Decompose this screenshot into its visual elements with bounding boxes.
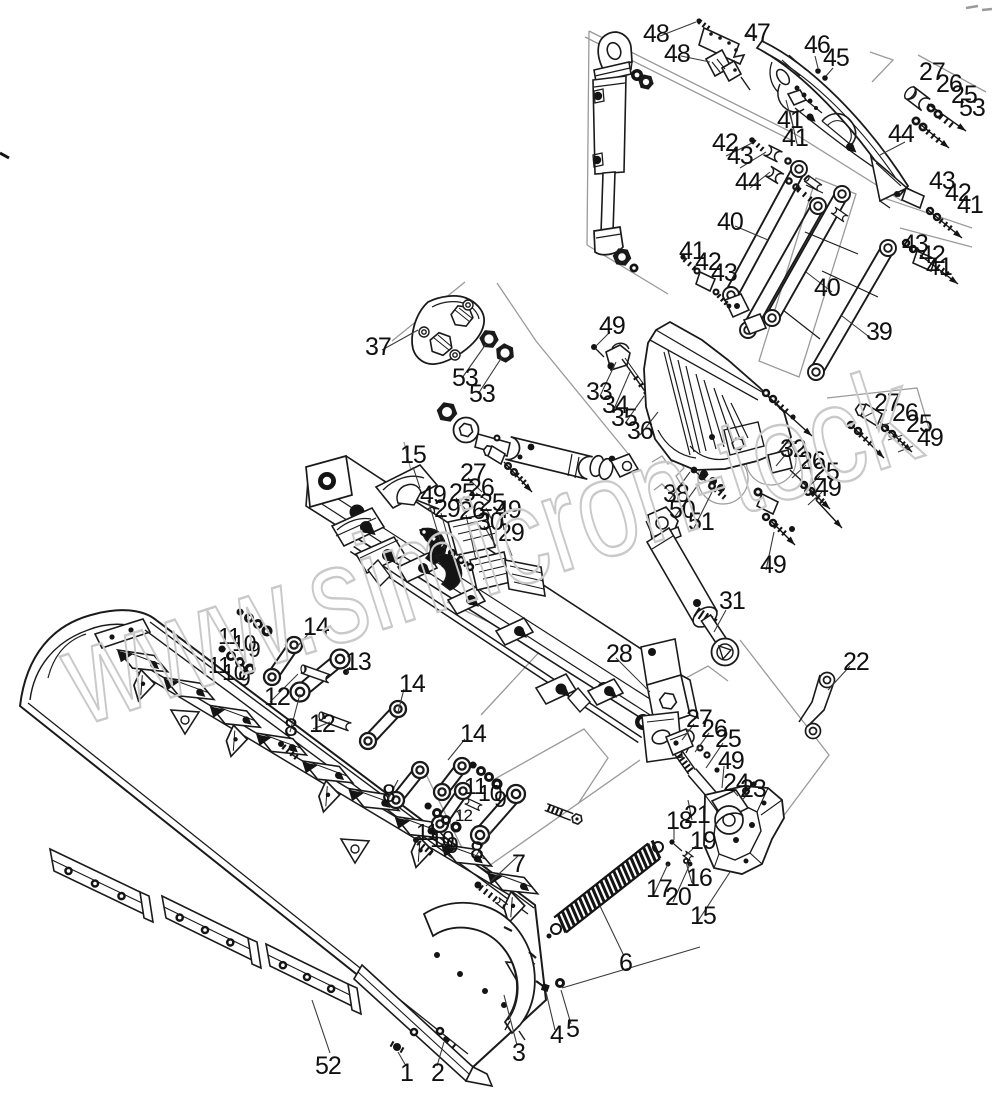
- svg-text:9: 9: [446, 832, 458, 858]
- svg-text:20: 20: [665, 883, 691, 911]
- svg-text:43: 43: [711, 259, 737, 287]
- svg-text:8: 8: [470, 837, 483, 865]
- svg-text:5: 5: [566, 1015, 579, 1043]
- svg-text:49: 49: [599, 312, 625, 340]
- svg-text:12: 12: [309, 710, 335, 738]
- svg-text:47: 47: [744, 19, 770, 47]
- svg-text:37: 37: [365, 333, 391, 361]
- svg-text:4: 4: [550, 1021, 564, 1049]
- svg-text:41: 41: [782, 124, 808, 152]
- svg-text:22: 22: [843, 648, 869, 676]
- svg-text:41: 41: [957, 191, 983, 219]
- svg-text:14: 14: [399, 670, 426, 698]
- svg-text:3: 3: [512, 1039, 525, 1067]
- svg-text:41: 41: [926, 253, 952, 281]
- svg-text:52: 52: [315, 1052, 341, 1080]
- svg-text:9: 9: [494, 786, 506, 812]
- svg-text:49: 49: [760, 551, 786, 579]
- svg-text:8: 8: [284, 714, 297, 742]
- svg-text:19: 19: [690, 827, 716, 855]
- svg-text:53: 53: [469, 380, 495, 408]
- svg-text:28: 28: [606, 640, 632, 668]
- svg-text:44: 44: [888, 120, 915, 148]
- svg-text:6: 6: [619, 949, 632, 977]
- svg-text:15: 15: [690, 902, 716, 930]
- svg-text:18: 18: [666, 807, 692, 835]
- svg-text:2: 2: [431, 1059, 444, 1087]
- svg-text:7: 7: [512, 850, 525, 878]
- svg-text:44: 44: [735, 168, 762, 196]
- svg-text:45: 45: [823, 44, 849, 72]
- svg-text:31: 31: [719, 587, 745, 615]
- svg-text:23: 23: [740, 775, 766, 803]
- svg-text:8: 8: [382, 780, 395, 808]
- svg-text:40: 40: [717, 208, 743, 236]
- svg-text:43: 43: [727, 142, 753, 170]
- svg-text:14: 14: [460, 720, 487, 748]
- svg-text:53: 53: [959, 94, 985, 122]
- svg-text:40: 40: [814, 274, 840, 302]
- svg-text:48: 48: [664, 40, 690, 68]
- svg-text:12: 12: [455, 806, 472, 825]
- svg-text:15: 15: [400, 441, 426, 469]
- svg-text:1: 1: [400, 1059, 413, 1087]
